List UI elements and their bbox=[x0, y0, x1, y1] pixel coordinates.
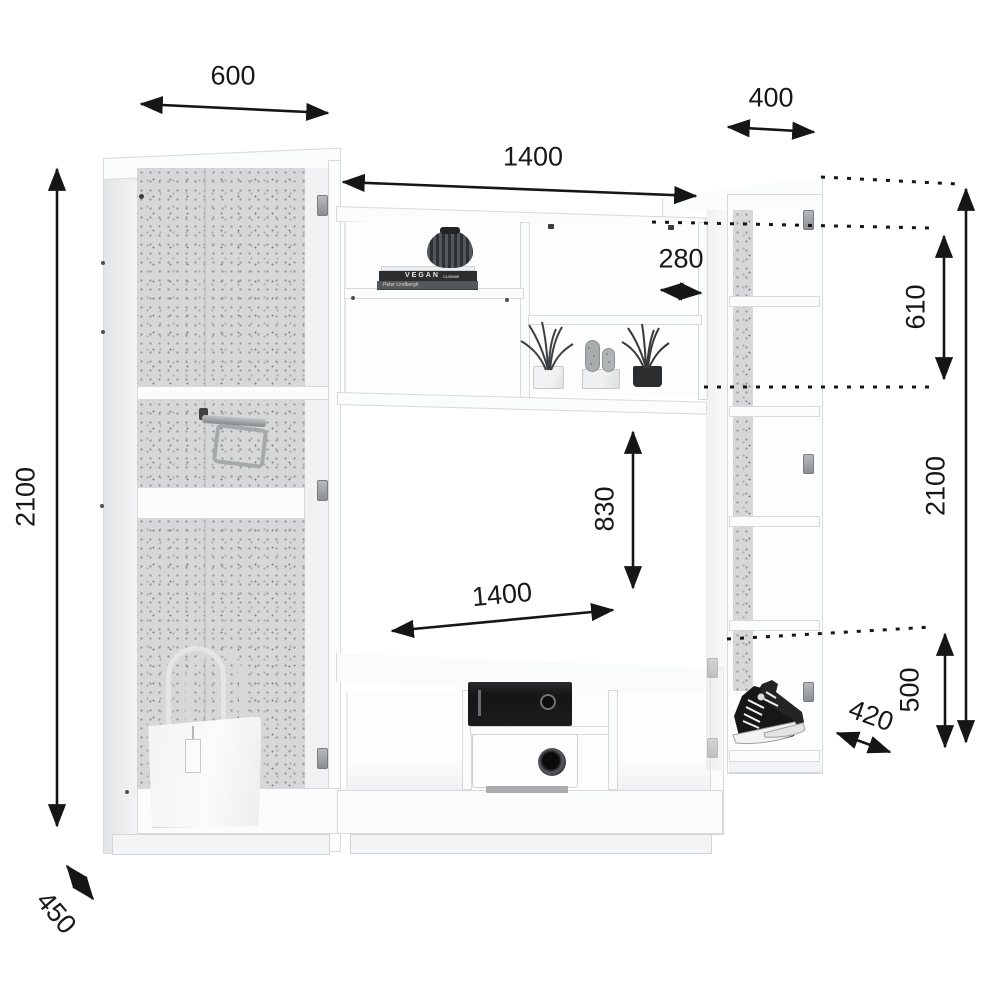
book-vegan: VEGAN CUISINE bbox=[379, 271, 477, 281]
media-player bbox=[468, 682, 572, 726]
tvstand-right-compartment bbox=[618, 692, 710, 790]
plant-pot-black bbox=[633, 366, 662, 387]
arrow-400 bbox=[728, 127, 814, 132]
arrow-1400-top bbox=[343, 182, 696, 196]
shelf-pin bbox=[100, 504, 104, 508]
dim-label-right-depth: 420 bbox=[845, 694, 898, 739]
dim-label-right-height: 2100 bbox=[921, 456, 952, 516]
hutch-divider bbox=[520, 222, 530, 398]
furniture-dimension-diagram: Peter Lindbergh VEGAN CUISINE bbox=[0, 0, 1000, 1000]
bookcase-back-strip-5 bbox=[733, 631, 753, 691]
dim-label-right-width: 400 bbox=[748, 83, 793, 114]
book-title-label: VEGAN bbox=[405, 272, 440, 279]
shelf-pin bbox=[101, 261, 105, 265]
fitting-mark bbox=[548, 224, 554, 229]
bookcase-back-strip-4 bbox=[733, 527, 753, 620]
wardrobe-inner-right-wall bbox=[305, 168, 328, 788]
handbag-body bbox=[146, 716, 262, 828]
bookcase-plinth bbox=[729, 762, 821, 773]
dim-label-left-depth: 450 bbox=[30, 886, 83, 940]
tvstand-left-compartment bbox=[346, 692, 462, 790]
vase-lip bbox=[440, 227, 460, 234]
fitting-mark bbox=[139, 194, 144, 199]
wardrobe-shelf bbox=[137, 386, 329, 400]
arrow-450 bbox=[67, 866, 93, 899]
tvstand-front-rail bbox=[337, 790, 723, 834]
extension-line-top bbox=[821, 177, 957, 184]
plant-pot-marble-1 bbox=[533, 366, 564, 389]
projector-base bbox=[486, 786, 568, 793]
wardrobe-plinth bbox=[112, 834, 330, 855]
projector-lens bbox=[538, 748, 566, 776]
bookcase-shelf-2 bbox=[729, 406, 820, 417]
media-player-slot bbox=[478, 690, 481, 716]
dim-label-span-width: 1400 bbox=[503, 142, 563, 173]
wardrobe-side-panel bbox=[103, 162, 139, 854]
wardrobe-hinge-mid bbox=[317, 480, 328, 501]
dim-label-shelf-depth: 280 bbox=[658, 244, 703, 275]
dim-label-base-height: 500 bbox=[895, 667, 926, 712]
wardrobe-hinge-top bbox=[317, 195, 328, 216]
wardrobe-hinge-bottom bbox=[317, 748, 328, 769]
shelf-pin bbox=[505, 298, 509, 302]
bookcase-shelf-3 bbox=[729, 516, 820, 527]
book-bottom: Peter Lindbergh bbox=[377, 281, 478, 290]
wardrobe-right-stile bbox=[328, 160, 341, 852]
arrow-1400-mid bbox=[392, 610, 613, 631]
handbag-tag-string bbox=[192, 726, 194, 740]
dim-label-opening-width: 1400 bbox=[471, 577, 534, 613]
bookcase-hinge-bottom bbox=[803, 682, 814, 702]
dim-label-hutch-height: 610 bbox=[901, 284, 932, 329]
cactus-large bbox=[585, 340, 600, 372]
dim-label-left-height: 2100 bbox=[11, 467, 42, 527]
handbag-tag bbox=[185, 739, 201, 773]
bookcase-side-sliver bbox=[706, 210, 727, 770]
book-subtitle-label: CUISINE bbox=[443, 274, 459, 279]
cactus-small bbox=[602, 348, 615, 372]
hutch-right-shelf bbox=[528, 315, 702, 325]
tvstand-divider-2 bbox=[608, 690, 618, 790]
bookcase-hinge-mid bbox=[803, 454, 814, 474]
shelf-pin bbox=[351, 296, 355, 300]
bookcase-back-strip-3 bbox=[733, 417, 753, 516]
dim-label-left-width: 600 bbox=[210, 61, 255, 92]
bookcase-back-strip-1 bbox=[733, 210, 753, 296]
bookcase-floor bbox=[729, 750, 820, 762]
hanger-loop bbox=[212, 423, 268, 469]
cactus-pot-marble bbox=[582, 369, 620, 389]
arrow-600 bbox=[141, 104, 328, 113]
bookcase-shelf-4 bbox=[729, 620, 820, 631]
bookcase-hinge-top bbox=[803, 210, 814, 230]
vase bbox=[427, 231, 473, 268]
fitting-mark bbox=[668, 225, 674, 230]
bookcase-shelf-1 bbox=[729, 296, 820, 307]
tvstand-plinth bbox=[350, 834, 712, 854]
wardrobe-crossbar bbox=[137, 487, 305, 519]
dim-label-opening-height: 830 bbox=[590, 486, 621, 531]
media-player-emblem bbox=[540, 694, 556, 710]
wardrobe-back-seam bbox=[204, 168, 206, 388]
wardrobe-back-upper bbox=[137, 168, 305, 388]
shelf-pin bbox=[101, 330, 105, 334]
shelf-pin bbox=[125, 790, 129, 794]
bookcase-back-strip-2 bbox=[733, 307, 753, 406]
book-author-label: Peter Lindbergh bbox=[383, 282, 419, 288]
